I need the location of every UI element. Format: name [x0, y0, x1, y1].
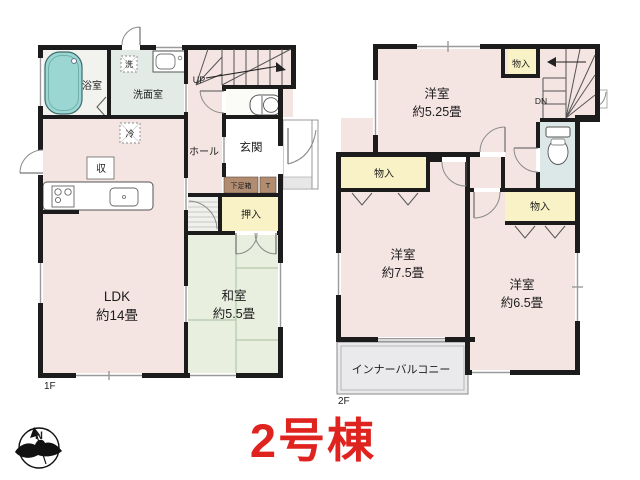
- compass-north-label: N: [35, 430, 43, 442]
- label-washer: 洗: [125, 59, 133, 69]
- label-bathroom: 浴室: [82, 79, 102, 92]
- bedroom3-lower-floor: [470, 337, 575, 370]
- label-fridge: 冷: [125, 128, 134, 139]
- label-stairs-up: UP: [193, 75, 206, 85]
- label-hall: ホール: [189, 146, 219, 158]
- label-bedroom2-name: 洋室: [390, 247, 415, 262]
- ldk-floor: [41, 117, 186, 375]
- floorplan-page: 浴室 洗 洗面室 冷 収 LDK 約14畳 ホール UP 玄関 下足箱 T 押入…: [0, 0, 640, 480]
- toilet2-seat: [551, 139, 565, 145]
- floorplan-drawing: 浴室 洗 洗面室 冷 収 LDK 約14畳 ホール UP 玄関 下足箱 T 押入…: [0, 0, 640, 480]
- label-bedroom1-size: 約5.25畳: [412, 104, 461, 119]
- label-closet-right: 物入: [530, 200, 550, 213]
- label-bedroom3-name: 洋室: [509, 277, 534, 292]
- label-bedroom2-size: 約7.5畳: [382, 265, 424, 280]
- label-ldk-size: 約14畳: [96, 308, 138, 323]
- label-ldk-name: LDK: [104, 289, 130, 304]
- label-balcony: インナーバルコニー: [352, 363, 451, 376]
- compass-icon: N: [15, 427, 62, 468]
- label-stairs-down: DN: [535, 96, 547, 106]
- label-washitsu-size: 約5.5畳: [213, 306, 255, 321]
- counter-base: [43, 210, 79, 214]
- label-storage: 収: [96, 163, 106, 175]
- label-toilet-t: T: [266, 181, 271, 190]
- floor2-plan: 洋室 約5.25畳 物入 DN 物入 物入 洋室 約7.5畳 洋室 約6.5畳 …: [336, 41, 607, 407]
- washitsu-floor: [188, 235, 281, 373]
- label-closet1: 押入: [241, 208, 261, 221]
- label-closet-top: 物入: [512, 58, 530, 69]
- porch-step: [283, 177, 312, 189]
- label-floor2: 2F: [338, 396, 350, 407]
- label-closet-left: 物入: [374, 167, 394, 180]
- toilet1-bowl: [264, 98, 279, 113]
- label-entrance: 玄関: [240, 140, 263, 154]
- toilet2-tank: [546, 127, 570, 137]
- building-title: 2号棟: [173, 410, 453, 474]
- label-floor1: 1F: [44, 381, 56, 392]
- label-washroom: 洗面室: [133, 88, 163, 101]
- label-bedroom1-name: 洋室: [424, 86, 449, 101]
- label-washitsu-name: 和室: [221, 288, 246, 303]
- floor1-plan: 浴室 洗 洗面室 冷 収 LDK 約14畳 ホール UP 玄関 下足箱 T 押入…: [20, 27, 318, 392]
- bath-faucet-icon: [72, 59, 77, 64]
- back-door-arc: [122, 27, 140, 45]
- label-shoe-box: 下足箱: [231, 181, 252, 190]
- label-bedroom3-size: 約6.5畳: [501, 295, 543, 310]
